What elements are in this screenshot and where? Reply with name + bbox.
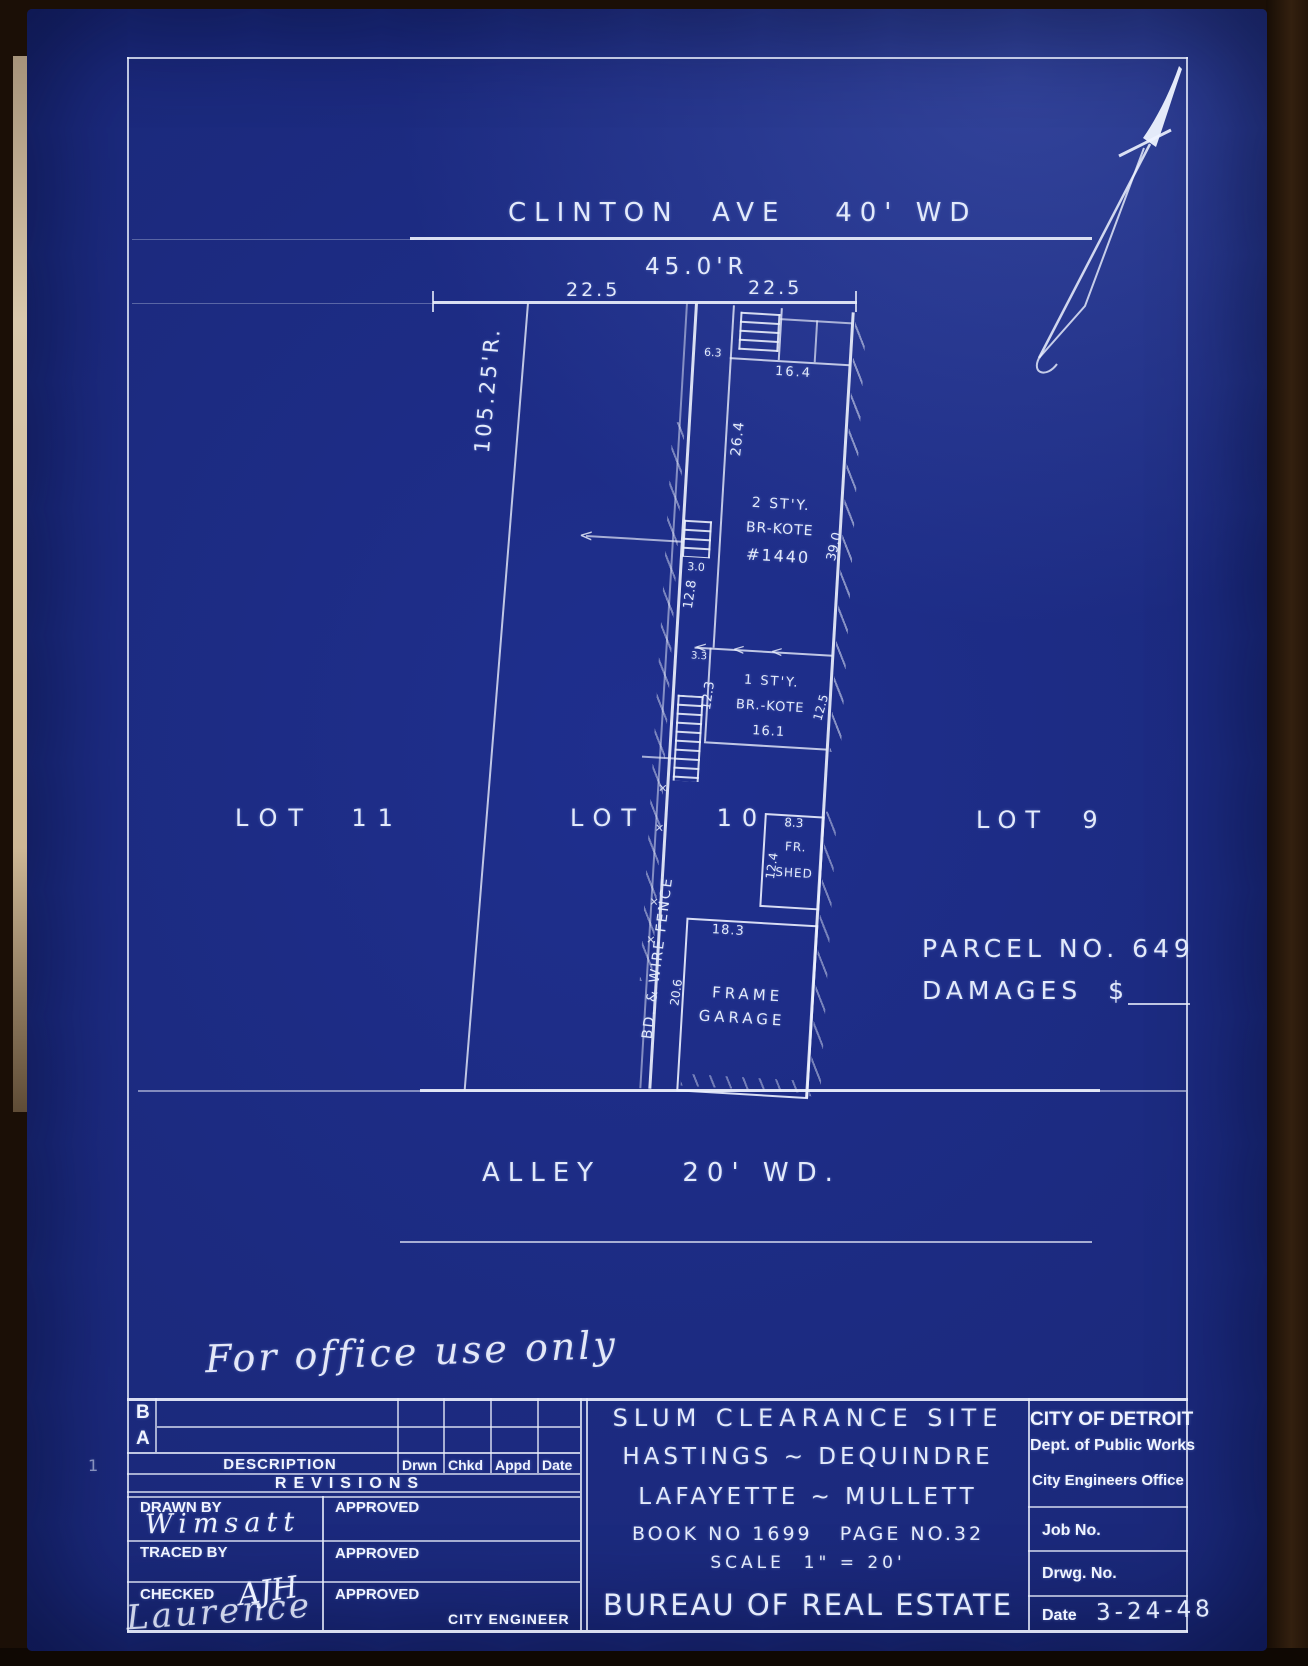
agency-line-3	[1028, 1595, 1188, 1597]
lot9-label: LOT 9	[976, 806, 1107, 834]
signature-row-line-1	[127, 1540, 580, 1542]
approved-label-1: APPROVED	[335, 1499, 419, 1516]
house-story-label: 2 ST'Y.	[723, 493, 840, 516]
project-scale: SCALE 1" = 20'	[592, 1553, 1024, 1573]
rear-width-dim: 16.1	[714, 721, 823, 742]
date-value: 3-24-48	[1096, 1596, 1215, 1626]
garage-width-dim: 18.3	[711, 922, 745, 939]
frontage-line-faint	[132, 303, 433, 304]
traced-by-label: TRACED BY	[140, 1544, 228, 1561]
lot11-label: LOT 11	[235, 804, 404, 832]
revision-description-header: DESCRIPTION	[170, 1456, 390, 1473]
revision-col-line-3	[490, 1398, 492, 1473]
scan-border-right	[1266, 0, 1308, 1666]
project-bureau: BUREAU OF REAL ESTATE	[588, 1588, 1028, 1622]
agency-line-2	[1028, 1550, 1188, 1552]
porch-inner-wall	[814, 320, 818, 362]
signature-row-line-2	[127, 1581, 580, 1583]
division-chevron-icon: <	[770, 642, 784, 661]
rear-steps	[673, 695, 704, 782]
street-line-faint	[132, 239, 414, 240]
drawn-by-signature: Wimsatt	[145, 1507, 301, 1541]
project-title-line2: HASTINGS ~ DEQUINDRE	[592, 1444, 1024, 1470]
garage-outline	[676, 918, 818, 1100]
fence-x-mark-icon: ✕	[658, 782, 668, 796]
revisions-underline-b	[127, 1496, 580, 1498]
alley-south-line	[400, 1241, 1092, 1243]
revision-row-b-line	[157, 1426, 580, 1428]
side-yard-dim: 6.3	[704, 346, 722, 360]
rear-material-label: BR.-KOTE	[716, 696, 825, 717]
shed-label-line2: SHED	[775, 865, 813, 881]
house-front-width-dim: 16.4	[775, 364, 813, 381]
fence-x-mark-icon: ✕	[654, 822, 664, 836]
drwg-no-label: Drwg. No.	[1042, 1565, 1117, 1583]
revision-col-line-2	[443, 1398, 445, 1473]
house-number-label: #1440	[720, 543, 837, 569]
frontage-tick-left	[432, 291, 434, 312]
street-line	[410, 237, 1092, 240]
north-arrow-icon	[1003, 56, 1203, 391]
revision-row-a-label: A	[136, 1428, 150, 1450]
revision-drwn-header: Drwn	[402, 1457, 437, 1473]
side-steps	[682, 520, 712, 559]
parcel-number-label: PARCEL NO. 649	[922, 934, 1195, 963]
job-no-label: Job No.	[1042, 1522, 1101, 1540]
frontage-record-label: 45.0'R	[645, 254, 749, 280]
revision-letter-col-line	[155, 1398, 157, 1452]
house-division-line	[695, 647, 833, 657]
approved-label-3: APPROVED	[335, 1586, 419, 1603]
city-engineer-label: CITY ENGINEER	[448, 1611, 570, 1627]
shed-width-dim: 8.3	[784, 815, 804, 830]
frame-left-line	[127, 57, 129, 1632]
steps-width-dim: 3.0	[687, 560, 705, 574]
house-west-length-dim: 26.4	[728, 420, 748, 457]
revision-date-header: Date	[542, 1457, 572, 1473]
revision-row-b-label: B	[136, 1402, 150, 1424]
rear-story-label: 1 ST'Y.	[717, 671, 826, 692]
damages-label: DAMAGES $	[922, 976, 1129, 1005]
frontage-tick-right	[855, 291, 857, 312]
rear-house-back-line	[704, 741, 827, 750]
approved-label-2: APPROVED	[335, 1545, 419, 1562]
rear-offset-dim: 3.3	[691, 650, 708, 662]
house-mid-west-dim: 12.8	[681, 579, 700, 610]
street-label: CLINTON AVE 40' WD	[508, 198, 977, 228]
front-steps	[738, 312, 780, 352]
damages-blank-line	[1128, 1003, 1190, 1005]
margin-mark: 1	[88, 1456, 98, 1475]
titleblock-divider-left-a	[580, 1398, 582, 1630]
revision-appd-header: Appd	[495, 1457, 531, 1473]
signature-divider	[322, 1496, 324, 1630]
division-chevron-icon: <	[732, 640, 746, 659]
frontage-right-dim: 22.5	[748, 277, 802, 299]
frontage-line	[433, 301, 857, 304]
lot10-parcel-strip: ✕ ✕ ✕ ✕ BD. & WIRE FENCE 16.4 6.3 26.4 3…	[648, 303, 854, 1098]
frame-bottom-line	[127, 1630, 1188, 1633]
west-arrowhead-icon: <	[578, 526, 593, 547]
agency-line-1	[1028, 1506, 1188, 1508]
revision-col-line-1	[397, 1398, 399, 1473]
revision-chkd-header: Chkd	[448, 1457, 483, 1473]
shed-label-line1: FR.	[785, 839, 807, 854]
project-book-page: BOOK NO 1699 PAGE NO.32	[592, 1523, 1024, 1545]
agency-name: CITY OF DETROIT	[1030, 1409, 1186, 1431]
date-label: Date	[1042, 1607, 1077, 1625]
alley-label: ALLEY 20' WD.	[482, 1158, 841, 1188]
agency-office: City Engineers Office	[1030, 1472, 1186, 1489]
project-title-line1: SLUM CLEARANCE SITE	[592, 1404, 1024, 1432]
frontage-left-dim: 22.5	[566, 279, 620, 301]
scan-edge-strip	[13, 56, 27, 1112]
house-material-label: BR-KOTE	[721, 518, 838, 541]
revisions-title: REVISIONS	[180, 1475, 520, 1493]
revision-col-line-4	[537, 1398, 539, 1473]
agency-dept: Dept. of Public Works	[1030, 1437, 1186, 1455]
project-title-line3: LAFAYETTE ~ MULLETT	[592, 1484, 1024, 1510]
revision-row-a-line	[127, 1452, 580, 1454]
